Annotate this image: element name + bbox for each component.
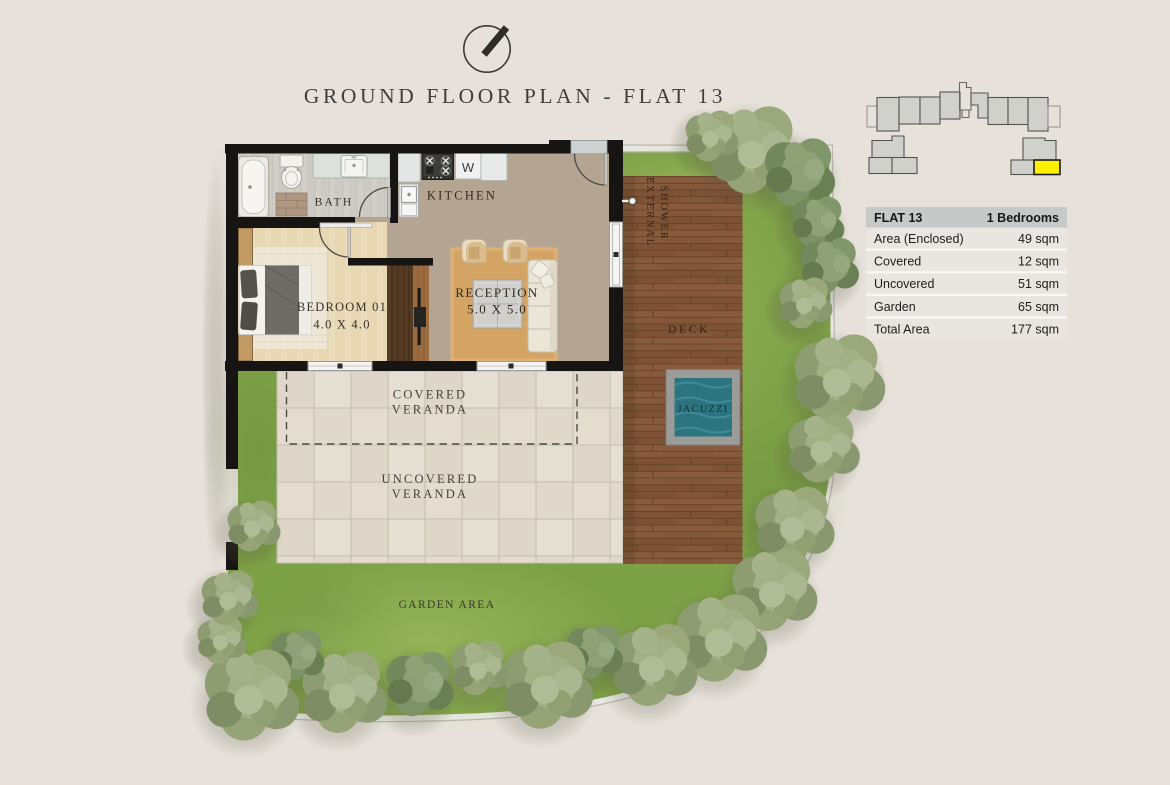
svg-text:COVERED: COVERED: [393, 388, 467, 402]
svg-text:W: W: [462, 160, 475, 175]
svg-text:177 sqm: 177 sqm: [1011, 322, 1059, 336]
svg-text:VERANDA: VERANDA: [392, 487, 469, 501]
svg-text:BATH: BATH: [315, 197, 354, 209]
svg-text:VERANDA: VERANDA: [392, 403, 469, 417]
svg-text:5.0 X 5.0: 5.0 X 5.0: [467, 302, 527, 317]
svg-text:4.0 X 4.0: 4.0 X 4.0: [313, 318, 370, 332]
svg-text:Covered: Covered: [874, 255, 921, 269]
svg-text:12 sqm: 12 sqm: [1018, 255, 1059, 269]
svg-text:RECEPTION: RECEPTION: [455, 285, 538, 300]
svg-text:Total Area: Total Area: [874, 322, 930, 336]
svg-text:BEDROOM 01: BEDROOM 01: [297, 300, 387, 314]
svg-text:51 sqm: 51 sqm: [1018, 277, 1059, 291]
svg-text:SHOWER: SHOWER: [658, 185, 669, 240]
svg-text:Uncovered: Uncovered: [874, 277, 934, 291]
svg-text:65 sqm: 65 sqm: [1018, 300, 1059, 314]
svg-text:EXTERNAL: EXTERNAL: [644, 177, 655, 247]
svg-text:DECK: DECK: [668, 322, 710, 336]
svg-text:Area (Enclosed): Area (Enclosed): [874, 232, 964, 246]
svg-text:KITCHEN: KITCHEN: [427, 189, 497, 203]
svg-text:JACUZZI: JACUZZI: [678, 404, 729, 415]
svg-text:FLAT 13: FLAT 13: [874, 211, 922, 225]
svg-text:UNCOVERED: UNCOVERED: [382, 472, 479, 486]
svg-text:49 sqm: 49 sqm: [1018, 232, 1059, 246]
svg-text:GROUND FLOOR PLAN - FLAT 13: GROUND FLOOR PLAN - FLAT 13: [304, 84, 726, 108]
svg-text:1 Bedrooms: 1 Bedrooms: [987, 211, 1059, 225]
svg-text:Garden: Garden: [874, 300, 916, 314]
svg-text:GARDEN AREA: GARDEN AREA: [399, 599, 496, 611]
